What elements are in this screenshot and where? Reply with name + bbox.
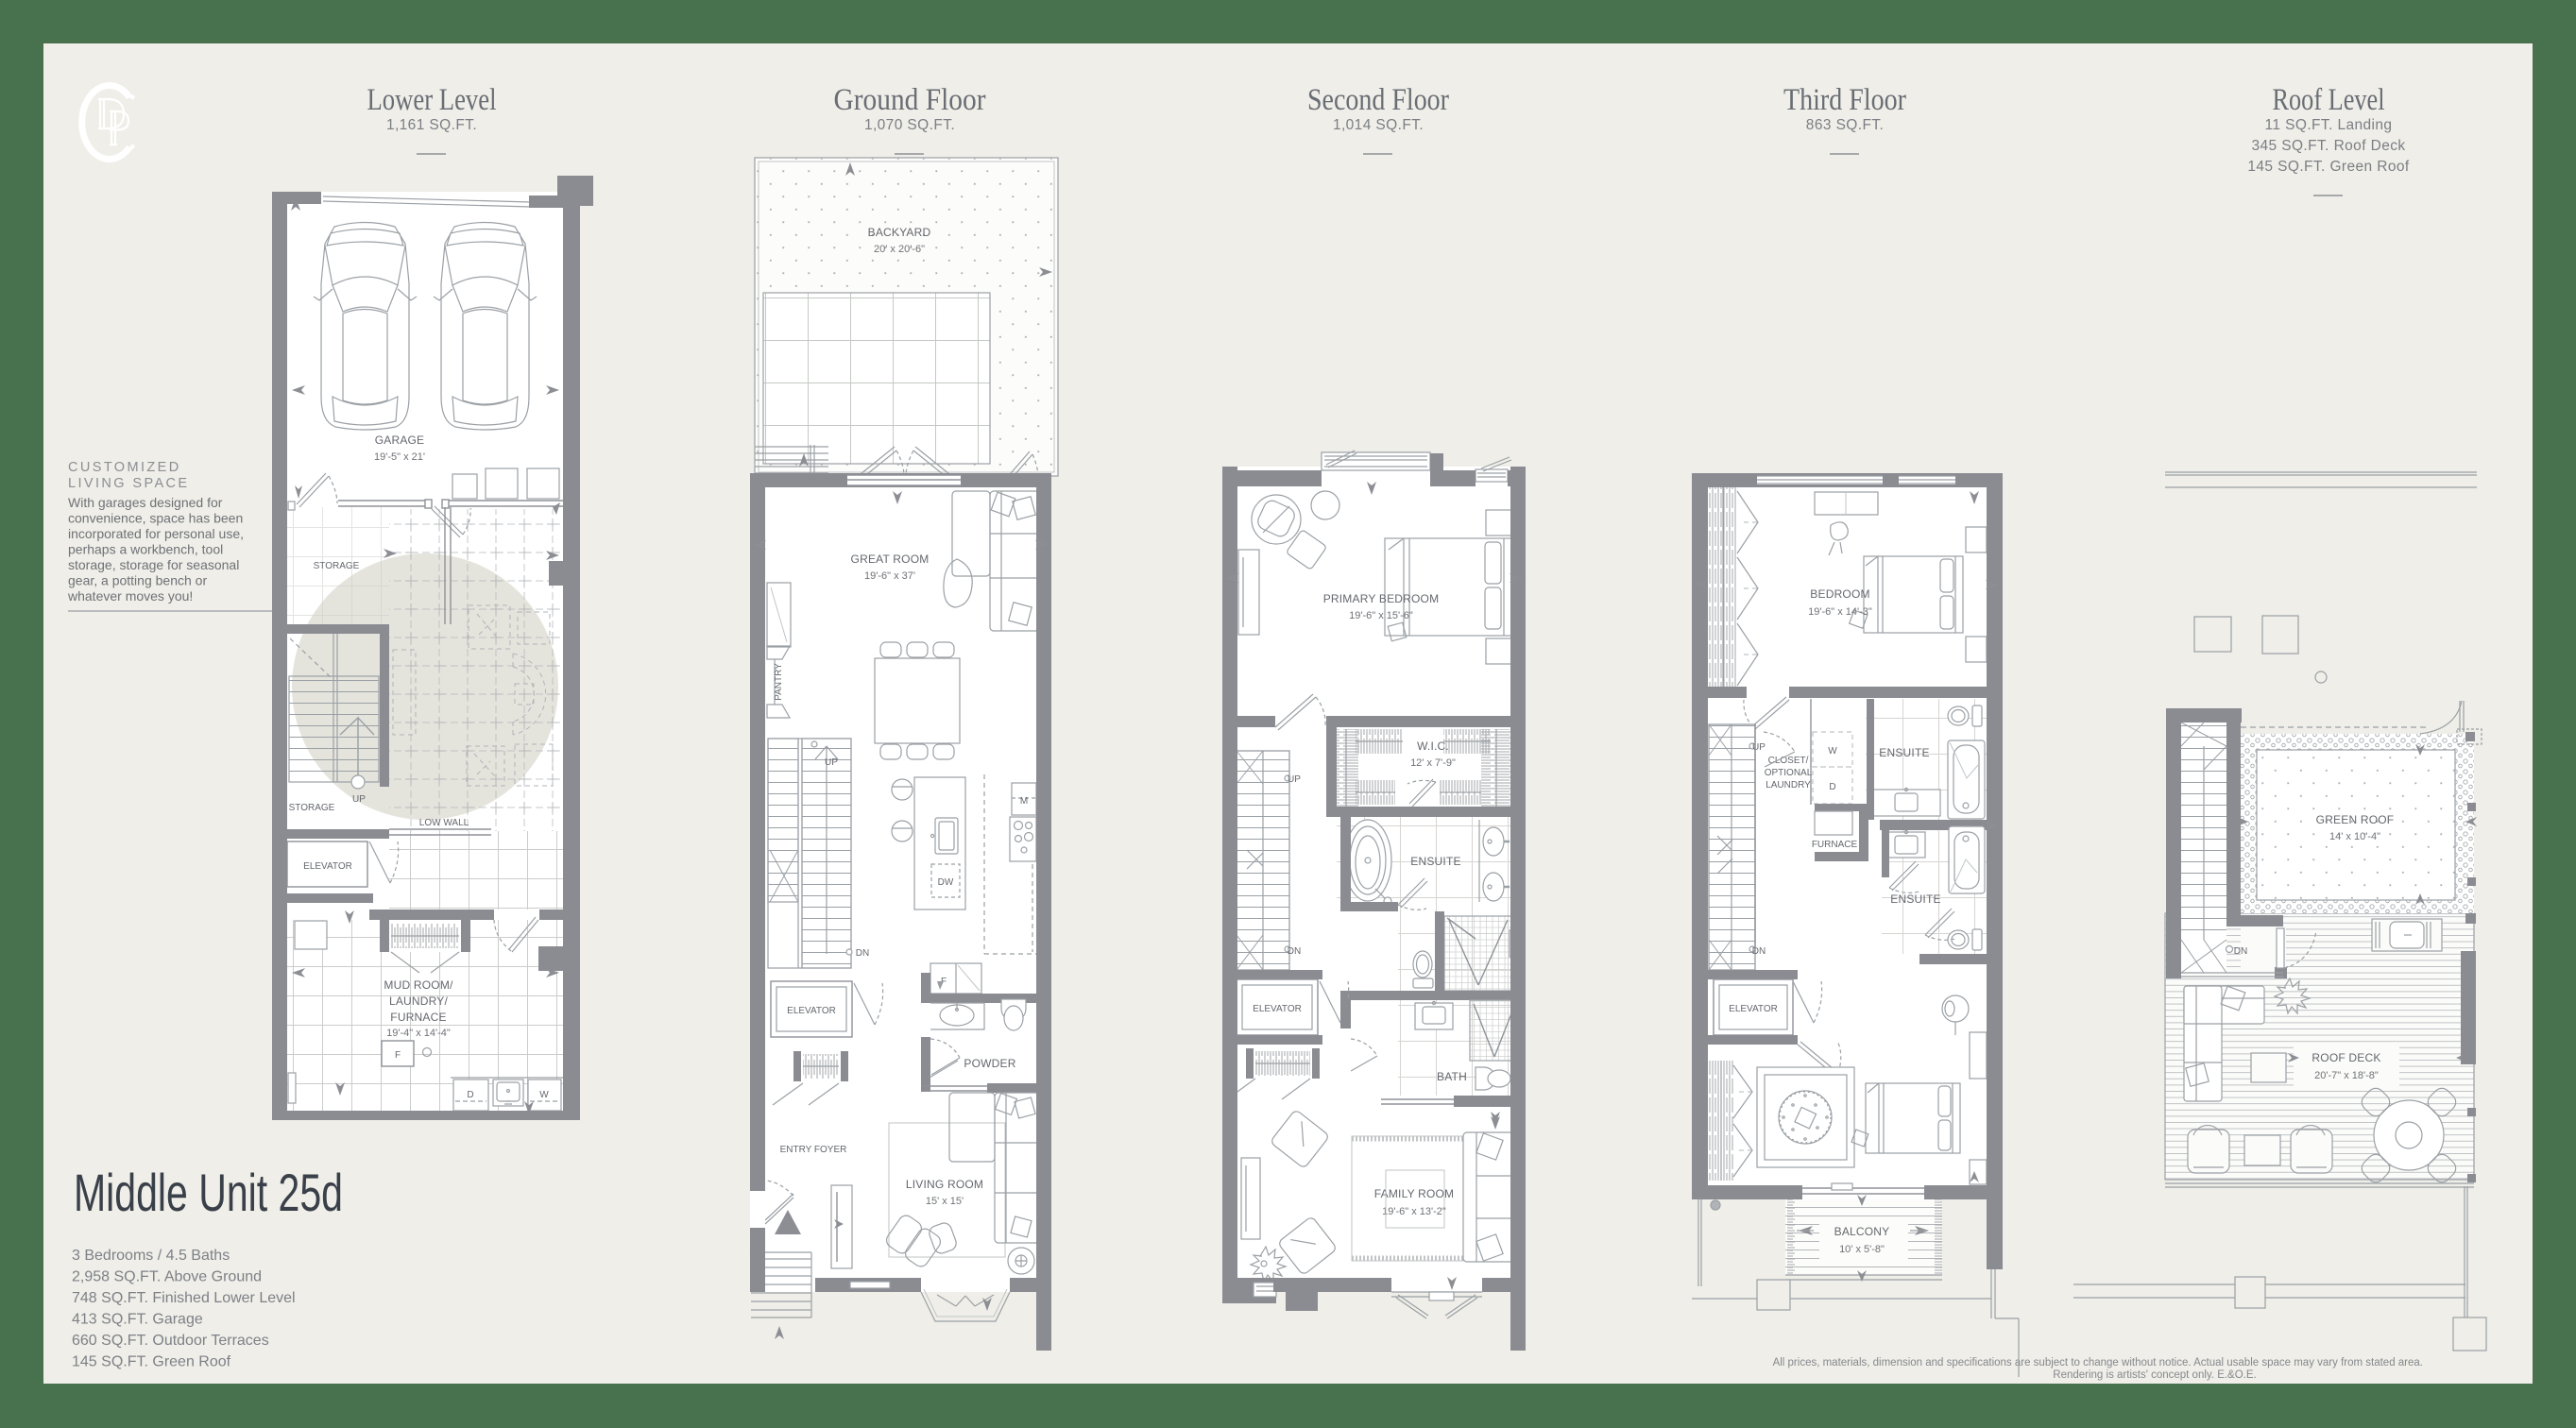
svg-text:DN: DN [856, 948, 869, 959]
svg-text:BEDROOM: BEDROOM [1810, 587, 1869, 601]
svg-text:19'-6" x 13'-2": 19'-6" x 13'-2" [1382, 1206, 1446, 1217]
svg-text:DW: DW [938, 877, 954, 888]
svg-text:3 Bedrooms / 4.5 Baths: 3 Bedrooms / 4.5 Baths [72, 1248, 230, 1264]
svg-text:UP: UP [1752, 742, 1766, 753]
svg-text:UP: UP [352, 794, 366, 805]
svg-text:perhaps a workbench, tool: perhaps a workbench, tool [68, 542, 223, 557]
svg-text:19'-6" x 15'-6": 19'-6" x 15'-6" [1349, 610, 1413, 621]
svg-text:413 SQ.FT. Garage: 413 SQ.FT. Garage [72, 1312, 203, 1328]
svg-text:All prices, materials, dimensi: All prices, materials, dimension and spe… [1773, 1357, 2423, 1368]
svg-text:BALCONY: BALCONY [1834, 1225, 1890, 1238]
svg-text:storage, storage for seasonal: storage, storage for seasonal [68, 557, 239, 572]
svg-text:LIVING SPACE: LIVING SPACE [68, 476, 189, 491]
svg-text:DN: DN [2234, 946, 2247, 957]
svg-text:863 SQ.FT.: 863 SQ.FT. [1806, 117, 1884, 133]
svg-text:FURNACE: FURNACE [1812, 840, 1858, 850]
svg-text:GARAGE: GARAGE [375, 433, 425, 447]
svg-text:GREEN ROOF: GREEN ROOF [2316, 813, 2395, 826]
svg-text:ROOF DECK: ROOF DECK [2312, 1051, 2380, 1064]
svg-text:19'-4" x 14'-4": 19'-4" x 14'-4" [386, 1028, 451, 1039]
svg-text:ELEVATOR: ELEVATOR [1253, 1004, 1302, 1014]
svg-text:PANTRY: PANTRY [774, 663, 784, 701]
svg-text:Middle Unit 25d: Middle Unit 25d [74, 1163, 343, 1222]
svg-text:748 SQ.FT. Finished Lower Leve: 748 SQ.FT. Finished Lower Level [72, 1290, 296, 1306]
svg-text:12' x 7'-9": 12' x 7'-9" [1410, 757, 1456, 769]
svg-text:STORAGE: STORAGE [314, 561, 360, 571]
svg-text:ENTRY FOYER: ENTRY FOYER [780, 1145, 847, 1155]
svg-text:FURNACE: FURNACE [390, 1011, 446, 1024]
svg-text:14' x 10'-4": 14' x 10'-4" [2329, 831, 2380, 842]
svg-text:ELEVATOR: ELEVATOR [787, 1006, 836, 1016]
svg-text:gear, a potting bench or: gear, a potting bench or [68, 573, 207, 588]
svg-text:CLOSET/: CLOSET/ [1768, 756, 1809, 766]
svg-text:1,070 SQ.FT.: 1,070 SQ.FT. [864, 117, 955, 133]
svg-text:STORAGE: STORAGE [289, 803, 335, 813]
svg-text:19'-6" x 14'-3": 19'-6" x 14'-3" [1808, 606, 1872, 618]
svg-text:BACKYARD: BACKYARD [868, 226, 931, 239]
svg-text:DN: DN [1288, 946, 1301, 957]
svg-text:Ground Floor: Ground Floor [834, 83, 986, 117]
svg-text:W: W [539, 1090, 549, 1100]
svg-text:ELEVATOR: ELEVATOR [303, 861, 352, 872]
svg-text:345 SQ.FT. Roof Deck: 345 SQ.FT. Roof Deck [2251, 138, 2405, 154]
svg-text:MUD ROOM/: MUD ROOM/ [384, 978, 453, 992]
svg-text:DN: DN [1752, 946, 1766, 957]
svg-text:660 SQ.FT. Outdoor Terraces: 660 SQ.FT. Outdoor Terraces [72, 1333, 269, 1349]
svg-text:Roof Level: Roof Level [2273, 83, 2385, 117]
svg-text:ENSUITE: ENSUITE [1410, 855, 1460, 868]
svg-text:145 SQ.FT. Green Roof: 145 SQ.FT. Green Roof [2247, 159, 2410, 175]
svg-text:1,161 SQ.FT.: 1,161 SQ.FT. [386, 117, 477, 133]
svg-text:convenience, space has been: convenience, space has been [68, 511, 243, 526]
svg-text:145 SQ.FT. Green Roof: 145 SQ.FT. Green Roof [72, 1354, 231, 1370]
svg-text:LIVING ROOM: LIVING ROOM [906, 1178, 983, 1191]
svg-text:incorporated for personal use,: incorporated for personal use, [68, 526, 244, 541]
svg-text:With garages designed for: With garages designed for [68, 495, 223, 510]
svg-text:20'-7" x 18'-8": 20'-7" x 18'-8" [2314, 1070, 2379, 1081]
svg-text:11 SQ.FT. Landing: 11 SQ.FT. Landing [2265, 117, 2393, 133]
svg-text:CUSTOMIZED: CUSTOMIZED [68, 460, 181, 475]
svg-text:Lower Level: Lower Level [367, 83, 497, 117]
svg-text:1,014 SQ.FT.: 1,014 SQ.FT. [1333, 117, 1424, 133]
svg-text:19'-6" x 37': 19'-6" x 37' [864, 570, 915, 582]
svg-text:LAUNDRY: LAUNDRY [1766, 780, 1811, 790]
svg-text:M: M [1020, 796, 1028, 807]
svg-text:15' x 15': 15' x 15' [926, 1196, 964, 1207]
svg-text:LOW WALL: LOW WALL [419, 818, 469, 828]
svg-text:D: D [1829, 782, 1835, 792]
svg-text:LAUNDRY/: LAUNDRY/ [389, 994, 449, 1008]
svg-text:ELEVATOR: ELEVATOR [1729, 1004, 1778, 1014]
svg-text:POWDER: POWDER [964, 1057, 1015, 1070]
svg-text:W: W [1828, 746, 1837, 756]
svg-text:10' x 5'-8": 10' x 5'-8" [1839, 1244, 1885, 1255]
svg-text:GREAT ROOM: GREAT ROOM [851, 552, 930, 566]
svg-text:ENSUITE: ENSUITE [1879, 746, 1929, 759]
svg-text:UP: UP [1288, 774, 1301, 785]
svg-text:2,958 SQ.FT. Above Ground: 2,958 SQ.FT. Above Ground [72, 1269, 262, 1285]
svg-text:UP: UP [825, 757, 838, 768]
svg-text:Third Floor: Third Floor [1783, 83, 1906, 117]
svg-text:Second Floor: Second Floor [1307, 83, 1449, 117]
svg-text:whatever moves you!: whatever moves you! [67, 588, 193, 603]
svg-text:PRIMARY BEDROOM: PRIMARY BEDROOM [1323, 592, 1440, 605]
svg-text:OPTIONAL: OPTIONAL [1765, 768, 1813, 778]
svg-text:D: D [467, 1090, 473, 1100]
svg-text:F: F [395, 1050, 401, 1061]
svg-text:20' x 20'-6": 20' x 20'-6" [874, 244, 925, 255]
svg-text:BATH: BATH [1437, 1070, 1467, 1083]
svg-text:19'-5" x 21': 19'-5" x 21' [374, 451, 425, 463]
svg-text:Rendering is artists' concept: Rendering is artists' concept only. E.&O… [2053, 1369, 2256, 1381]
svg-text:ENSUITE: ENSUITE [1890, 892, 1940, 906]
